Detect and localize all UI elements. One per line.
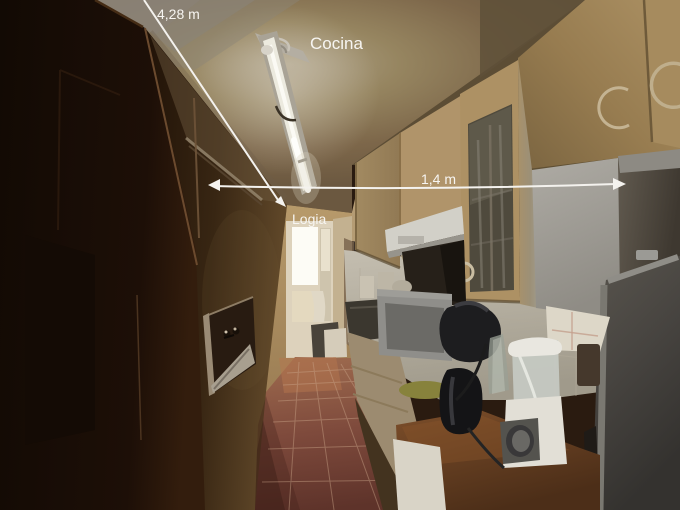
svg-text:Cocina: Cocina <box>310 34 363 53</box>
svg-text:4,28 m: 4,28 m <box>157 6 200 22</box>
svg-text:Logia: Logia <box>292 211 326 227</box>
svg-text:1,4 m: 1,4 m <box>421 171 456 187</box>
